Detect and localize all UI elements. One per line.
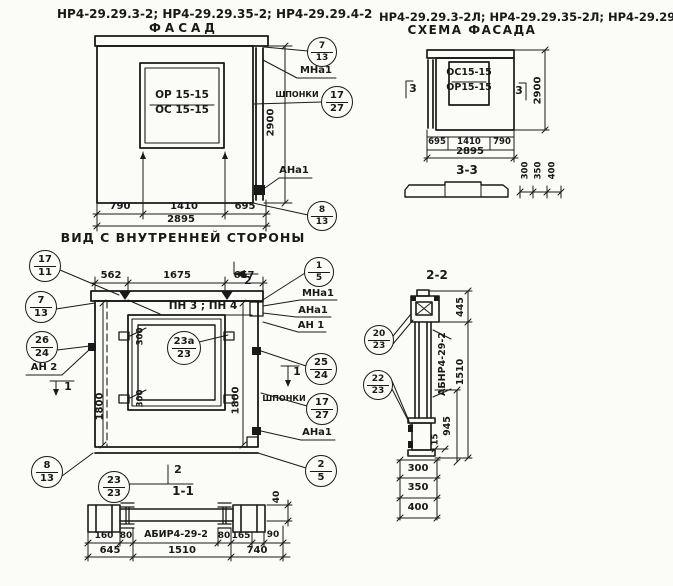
dim-695: 695 bbox=[426, 138, 448, 149]
callout-2-5-denominator: 5 bbox=[317, 472, 326, 484]
section-mark-2-bottom: 2 bbox=[171, 464, 185, 478]
callout-8-13-denominator: 13 bbox=[315, 217, 330, 227]
dim-300-bottom: 300 bbox=[137, 386, 148, 410]
callout-25-24-denominator: 24 bbox=[313, 370, 329, 382]
dim-40: 40 bbox=[272, 487, 284, 507]
section-1-1-title: 1-1 bbox=[163, 485, 203, 501]
ana1-label: АНа1 bbox=[272, 165, 316, 178]
dim-1510: 1510 bbox=[456, 356, 468, 388]
dim-90: 90 bbox=[263, 530, 283, 542]
annotation-layer: НР4-29.29.3-2; НР4-29.29.35-2; НР4-29.29… bbox=[0, 0, 673, 586]
dim-2900: 2900 bbox=[533, 72, 546, 108]
pn-plates-label: ПН 3 ; ПН 4 bbox=[148, 301, 258, 315]
callout-26-24-denominator: 24 bbox=[34, 348, 50, 360]
mna1-label: МНа1 bbox=[296, 288, 340, 301]
callout-17-11-numerator: 17 bbox=[34, 254, 56, 267]
callout-7-13-numerator: 7 bbox=[30, 295, 52, 308]
beam-label: АБИР4-29-2 bbox=[133, 530, 219, 542]
inner-view-title: ВИД С ВНУТРЕННЕЙ СТОРОНЫ bbox=[53, 231, 313, 247]
shponki-label: ШПОНКИ bbox=[260, 395, 308, 405]
callout-20-23: 2023 bbox=[364, 325, 394, 355]
shponki-label: ШПОНКИ bbox=[273, 91, 321, 101]
section-mark-2-top: 2 bbox=[241, 275, 255, 289]
callout-25-24-numerator: 25 bbox=[310, 357, 332, 370]
an1-label: АН 1 bbox=[291, 320, 331, 333]
section-2-2-title: 2-2 bbox=[415, 269, 459, 285]
dim-300: 300 bbox=[522, 158, 533, 182]
dim-1800-right: 1800 bbox=[231, 383, 244, 417]
callout-8-13: 813 bbox=[307, 201, 337, 231]
scheme-title: СХЕМА ФАСАДА bbox=[397, 24, 547, 40]
dim-1675: 1675 bbox=[159, 270, 195, 283]
beam-label: АБНР4-29-2 bbox=[438, 329, 450, 399]
callout-17-27-numerator: 17 bbox=[326, 90, 348, 103]
dim-562: 562 bbox=[96, 270, 126, 283]
callout-20-23-denominator: 23 bbox=[372, 341, 387, 351]
dim-790: 790 bbox=[103, 201, 137, 214]
dim-645: 645 bbox=[95, 545, 125, 558]
callout-7-13: 713 bbox=[307, 37, 337, 67]
callout-23a-23-numerator: 23а bbox=[172, 336, 196, 349]
callout-8-13-numerator: 8 bbox=[36, 460, 58, 473]
dim-2895: 2895 bbox=[450, 146, 490, 159]
callout-23a-23-denominator: 23 bbox=[176, 349, 192, 361]
callout-8-13-numerator: 8 bbox=[311, 205, 332, 216]
callout-23a-23: 23а23 bbox=[167, 331, 201, 365]
callout-17-27-numerator: 17 bbox=[311, 397, 333, 410]
an2-label: АН 2 bbox=[24, 362, 64, 375]
section-mark-3-left: 3 bbox=[406, 83, 420, 97]
window-mark-top: ОР 15-15 bbox=[146, 90, 218, 104]
callout-22-23: 2223 bbox=[363, 370, 393, 400]
callout-2-5-numerator: 2 bbox=[310, 459, 332, 472]
dim-1510: 1510 bbox=[164, 545, 200, 558]
callout-17-27: 1727 bbox=[306, 393, 338, 425]
ana1-label-bottom: АНа1 bbox=[295, 427, 339, 440]
dim-945: 945 bbox=[443, 412, 455, 440]
dim-350: 350 bbox=[535, 158, 546, 182]
mna1-label: МНа1 bbox=[294, 65, 338, 78]
dim-695: 695 bbox=[228, 201, 262, 214]
callout-8-13: 813 bbox=[31, 456, 63, 488]
window-mark-bottom: ОС 15-15 bbox=[146, 105, 218, 119]
callout-1-5-numerator: 1 bbox=[308, 261, 329, 272]
callout-17-27: 1727 bbox=[321, 86, 353, 118]
callout-7-13-numerator: 7 bbox=[311, 41, 332, 52]
callout-7-13-denominator: 13 bbox=[315, 53, 330, 63]
blueprint-canvas: НР4-29.29.3-2; НР4-29.29.35-2; НР4-29.29… bbox=[0, 0, 673, 586]
dim-400: 400 bbox=[549, 158, 560, 182]
dim-300: 300 bbox=[403, 463, 433, 476]
dim-740: 740 bbox=[242, 545, 272, 558]
callout-26-24: 2624 bbox=[26, 331, 58, 363]
callout-22-23-denominator: 23 bbox=[371, 386, 386, 396]
ana1-label-top: АНа1 bbox=[291, 305, 335, 318]
callout-8-13-denominator: 13 bbox=[39, 473, 55, 485]
callout-20-23-numerator: 20 bbox=[368, 329, 389, 340]
section-mark-3-right: 3 bbox=[512, 85, 526, 99]
callout-23-23: 2323 bbox=[98, 471, 130, 503]
callout-25-24: 2524 bbox=[305, 353, 337, 385]
dim-790: 790 bbox=[490, 138, 514, 149]
dim-400: 400 bbox=[403, 502, 433, 515]
callout-23-23-numerator: 23 bbox=[103, 475, 125, 488]
dim-165: 165 bbox=[229, 531, 253, 543]
callout-17-11-denominator: 11 bbox=[37, 267, 53, 279]
section-mark-1-left: 1 bbox=[62, 381, 74, 395]
dim-350: 350 bbox=[403, 482, 433, 495]
callout-22-23-numerator: 22 bbox=[367, 374, 388, 385]
dim-160: 160 bbox=[91, 531, 117, 543]
dim-2895: 2895 bbox=[159, 214, 203, 227]
callout-17-27-denominator: 27 bbox=[314, 410, 330, 422]
callout-17-27-denominator: 27 bbox=[329, 103, 345, 115]
dim-445: 445 bbox=[456, 293, 468, 321]
window-mark-top: ОС15-15 bbox=[441, 68, 497, 80]
callout-26-24-numerator: 26 bbox=[31, 335, 53, 348]
window-mark-bottom: ОР15-15 bbox=[441, 83, 497, 95]
section-3-3-title: 3-3 bbox=[447, 164, 487, 180]
callout-7-13-denominator: 13 bbox=[33, 308, 49, 320]
dim-300-top: 300 bbox=[137, 324, 148, 348]
section-mark-1-right: 1 bbox=[291, 366, 303, 380]
callout-17-11: 1711 bbox=[29, 250, 61, 282]
callout-7-13: 713 bbox=[25, 291, 57, 323]
callout-1-5-denominator: 5 bbox=[315, 273, 323, 283]
dim-1800-left: 1800 bbox=[95, 389, 108, 423]
callout-23-23-denominator: 23 bbox=[106, 488, 122, 500]
dim-1410: 1410 bbox=[164, 201, 204, 214]
callout-2-5: 25 bbox=[305, 455, 337, 487]
dim-15: 15 bbox=[432, 431, 443, 447]
facade-title: ФАСАД bbox=[134, 22, 234, 38]
dim-2900: 2900 bbox=[266, 104, 279, 140]
callout-1-5: 15 bbox=[304, 257, 334, 287]
